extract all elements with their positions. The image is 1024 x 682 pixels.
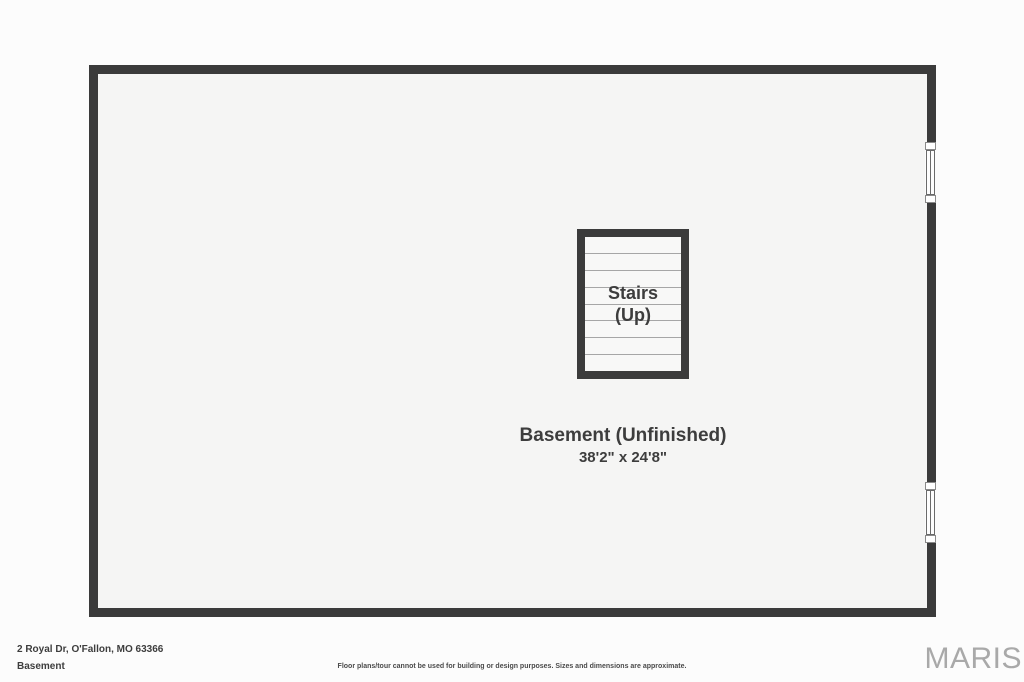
maris-logo: MARIS xyxy=(924,644,1022,674)
stair-tread xyxy=(585,355,681,371)
floor-plan-page: Stairs (Up) Basement (Unfinished) 38'2" … xyxy=(0,0,1024,682)
window-frame-cap xyxy=(925,142,936,150)
room-outline: Stairs (Up) Basement (Unfinished) 38'2" … xyxy=(89,65,936,617)
footer-address: 2 Royal Dr, O'Fallon, MO 63366 xyxy=(17,641,163,658)
room-name: Basement (Unfinished) xyxy=(520,424,727,448)
room-dimensions: 38'2" x 24'8" xyxy=(520,449,727,467)
stairs-label-line2: (Up) xyxy=(608,304,658,326)
stair-tread xyxy=(585,237,681,254)
window-frame-cap xyxy=(925,482,936,490)
window-frame-cap xyxy=(925,535,936,543)
stairs: Stairs (Up) xyxy=(577,229,689,379)
window-symbol-lower xyxy=(925,482,936,543)
room-label: Basement (Unfinished) 38'2" x 24'8" xyxy=(520,424,727,467)
window-pane xyxy=(926,150,935,195)
stair-tread xyxy=(585,254,681,271)
window-symbol-upper xyxy=(925,142,936,203)
stairs-label: Stairs (Up) xyxy=(608,282,658,326)
stairs-label-line1: Stairs xyxy=(608,282,658,304)
window-frame-cap xyxy=(925,195,936,203)
stair-tread xyxy=(585,338,681,355)
footer-disclaimer: Floor plans/tour cannot be used for buil… xyxy=(0,663,1024,670)
window-pane xyxy=(926,490,935,535)
